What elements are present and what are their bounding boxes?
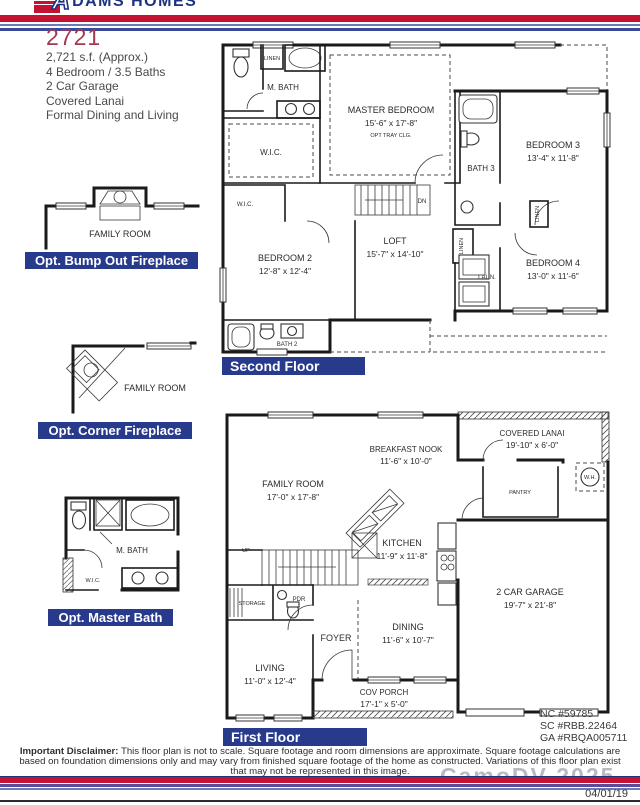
room-dims-covered-lanai: 19'-10" x 6'-0" xyxy=(506,440,558,450)
spec-line: 2,721 s.f. (Approx.) xyxy=(46,50,179,65)
spec-line: Formal Dining and Living xyxy=(46,108,179,123)
spec-line: Covered Lanai xyxy=(46,94,179,109)
room-dims-bedroom3: 13'-4" x 11'-8" xyxy=(527,153,579,163)
spec-line: 4 Bedroom / 3.5 Baths xyxy=(46,65,179,80)
room-label-bedroom4: BEDROOM 4 xyxy=(526,258,580,268)
room-note-master-bedroom: OPT TRAY CLG. xyxy=(370,133,412,139)
room-label-dining: DINING xyxy=(392,622,424,632)
stairs-dn-label: DN xyxy=(418,199,427,205)
opt-master-bath-diagram: M. BATH W.I.C. xyxy=(38,490,193,602)
room-label-wic: W.I.C. xyxy=(86,578,101,584)
closet-label-linen: LINEN xyxy=(535,206,541,222)
label-water-heater: W.H. xyxy=(584,475,596,481)
room-label-bedroom2: BEDROOM 2 xyxy=(258,253,312,263)
room-label-laundry: LAUN. xyxy=(478,275,496,281)
room-label-bedroom3: BEDROOM 3 xyxy=(526,140,580,150)
room-dims-kitchen: 11'-9" x 11'-8" xyxy=(376,551,427,561)
room-label-bath2: BATH 2 xyxy=(277,342,298,348)
option-bar-corner-fireplace: Opt. Corner Fireplace xyxy=(38,422,192,439)
room-label-cov-porch: COV PORCH xyxy=(360,688,409,697)
room-label-family-room: FAMILY ROOM xyxy=(89,229,151,239)
room-label-kitchen: KITCHEN xyxy=(382,538,422,548)
room-label-pantry: PANTRY xyxy=(509,490,531,496)
room-label-covered-lanai: COVERED LANAI xyxy=(500,429,565,438)
second-floor-plan: LINEN M. BATH W.I.C. MASTER BEDROOM 15'-… xyxy=(215,33,617,355)
room-dims-breakfast-nook: 11'-6" x 10'-0" xyxy=(380,456,432,466)
room-label-family-room: FAMILY ROOM xyxy=(124,383,186,393)
room-label-family-room: FAMILY ROOM xyxy=(262,479,324,489)
revision-date: 04/01/19 xyxy=(585,788,628,800)
footer-stripes xyxy=(0,776,640,790)
plan-specs: 2,721 s.f. (Approx.) 4 Bedroom / 3.5 Bat… xyxy=(46,50,179,123)
room-label-master-bedroom: MASTER BEDROOM xyxy=(348,105,435,115)
room-label-storage: STORAGE xyxy=(239,601,266,607)
room-label-loft: LOFT xyxy=(383,236,407,246)
bottom-border xyxy=(0,800,640,802)
porch-edge xyxy=(313,711,453,718)
logo-letter: A xyxy=(52,0,70,13)
section-bar-first-floor: First Floor xyxy=(223,728,367,746)
room-label-bath3: BATH 3 xyxy=(467,164,495,173)
room-label-m-bath: M. BATH xyxy=(267,83,299,92)
adams-homes-logo: A DAMS HOMES xyxy=(34,0,314,16)
stairs-up-label: UP xyxy=(242,548,250,554)
room-dims-living: 11'-0" x 12'-4" xyxy=(244,676,296,686)
room-dims-cov-porch: 17'-1" x 5'-0" xyxy=(360,699,408,709)
room-dims-loft: 15'-7" x 14'-10" xyxy=(366,249,423,259)
plan-number: 2721 xyxy=(46,24,101,51)
room-label-wic: W.I.C. xyxy=(260,148,282,157)
room-label-garage: 2 CAR GARAGE xyxy=(496,587,564,597)
front-door xyxy=(322,650,352,680)
license-ga: GA #RBQA005711 xyxy=(540,732,627,744)
closet-label-linen: LINEN xyxy=(459,238,465,254)
room-label-wic-small: W.I.C. xyxy=(237,202,254,208)
option-bar-bump-out-fireplace: Opt. Bump Out Fireplace xyxy=(25,252,198,269)
license-sc: SC #RBB.22464 xyxy=(540,720,627,732)
room-label-linen: LINEN xyxy=(264,56,280,62)
spec-line: 2 Car Garage xyxy=(46,79,179,94)
license-nc: NC #59785 xyxy=(540,708,627,720)
room-dims-bedroom2: 12'-8" x 12'-4" xyxy=(259,266,311,276)
room-dims-bedroom4: 13'-0" x 11'-6" xyxy=(527,271,579,281)
section-bar-second-floor: Second Floor xyxy=(222,357,365,375)
room-label-foyer: FOYER xyxy=(320,633,352,643)
lanai-screen-edge xyxy=(458,412,608,419)
room-dims-master-bedroom: 15'-6" x 17'-8" xyxy=(365,118,417,128)
room-dims-family-room: 17'-0" x 17'-8" xyxy=(267,492,319,502)
option-bar-master-bath: Opt. Master Bath xyxy=(48,609,173,626)
room-label-breakfast-nook: BREAKFAST NOOK xyxy=(370,445,443,454)
opt-corner-fireplace-diagram: FAMILY ROOM xyxy=(55,336,205,420)
room-label-m-bath: M. BATH xyxy=(116,546,148,555)
room-label-living: LIVING xyxy=(255,663,285,673)
first-floor-plan: COVERED LANAI 19'-10" x 6'-0" 2 CAR GARA… xyxy=(218,405,620,745)
garage-door xyxy=(466,709,524,716)
opt-bump-out-fireplace-diagram: FAMILY ROOM xyxy=(42,176,202,250)
license-numbers: NC #59785 SC #RBB.22464 GA #RBQA005711 xyxy=(540,708,627,744)
room-dims-dining: 11'-6" x 10'-7" xyxy=(382,635,434,645)
room-dims-garage: 19'-7" x 21'-8" xyxy=(504,600,556,610)
brand-text: DAMS HOMES xyxy=(72,0,197,13)
